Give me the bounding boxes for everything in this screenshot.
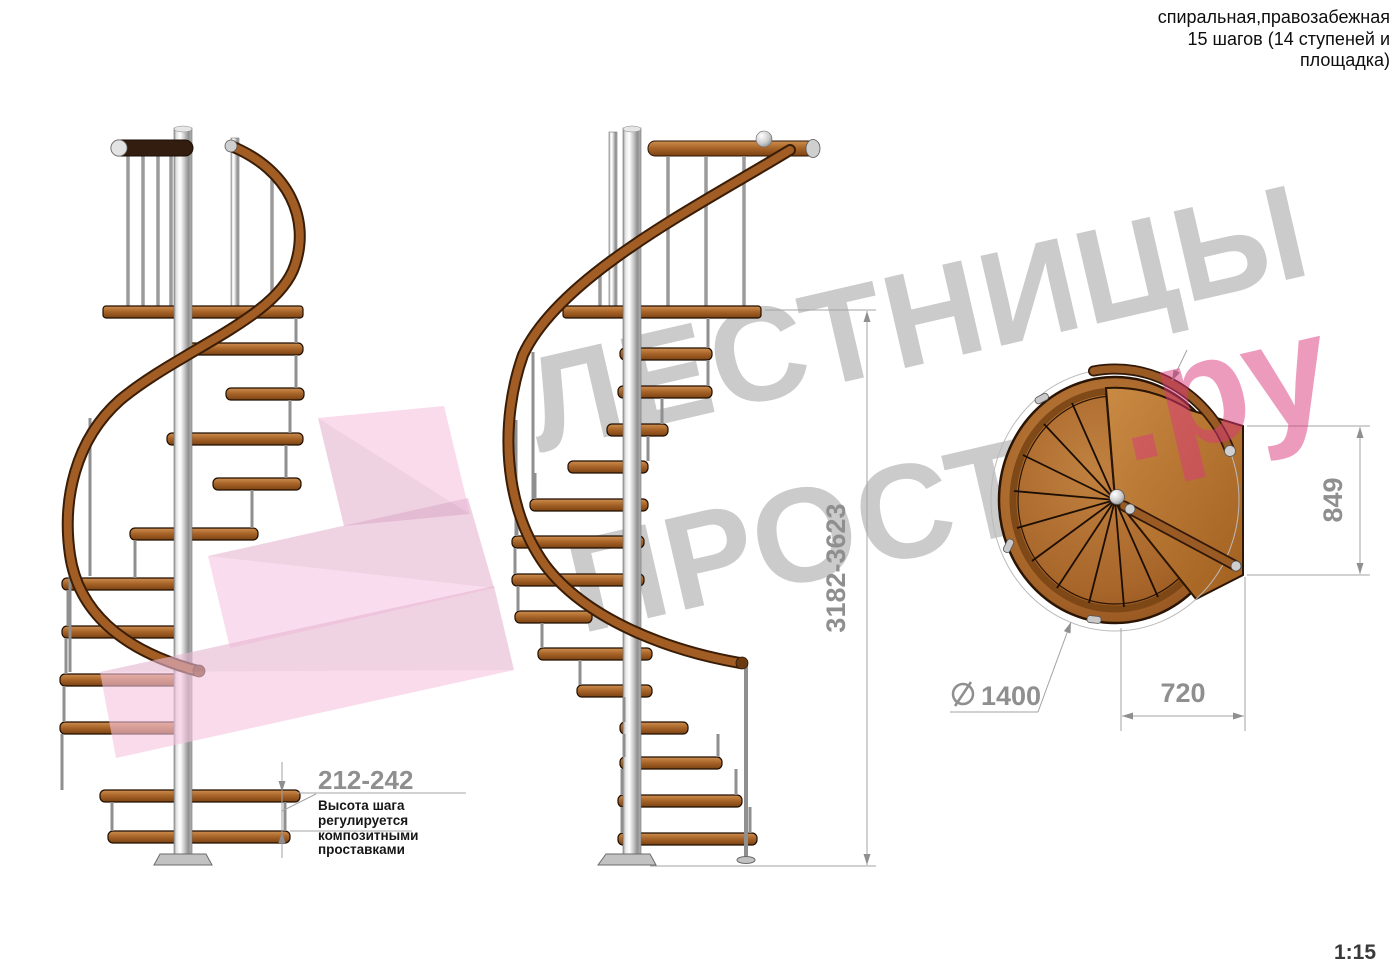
- diameter-symbol: [953, 682, 973, 706]
- step-height-note: Высота шага регулируется композитными пр…: [318, 799, 418, 858]
- title-line-3: площадка): [1158, 50, 1390, 72]
- note-line-3: композитными: [318, 829, 418, 844]
- note-line-1: Высота шага: [318, 799, 418, 814]
- dim-platform-depth: 849: [1318, 477, 1348, 522]
- dim-total-height: 3182-3623: [821, 503, 851, 632]
- dim-diameter-value: 1400: [981, 681, 1041, 711]
- staircase-side-view-1: [60, 126, 304, 865]
- dim-platform-width: 720: [1160, 678, 1205, 708]
- dim-step-height: 212-242: [318, 765, 413, 795]
- staircase-side-view-2: [508, 126, 820, 865]
- plan-center-pole: [1110, 490, 1125, 505]
- scale-label: 1:15: [1334, 941, 1376, 965]
- title-block: спиральная,правозабежная 15 шагов (14 ст…: [1158, 7, 1390, 72]
- title-line-2: 15 шагов (14 ступеней и: [1158, 29, 1390, 51]
- note-line-4: проставками: [318, 843, 418, 858]
- note-line-2: регулируется: [318, 814, 418, 829]
- title-line-1: спиральная,правозабежная: [1158, 7, 1390, 29]
